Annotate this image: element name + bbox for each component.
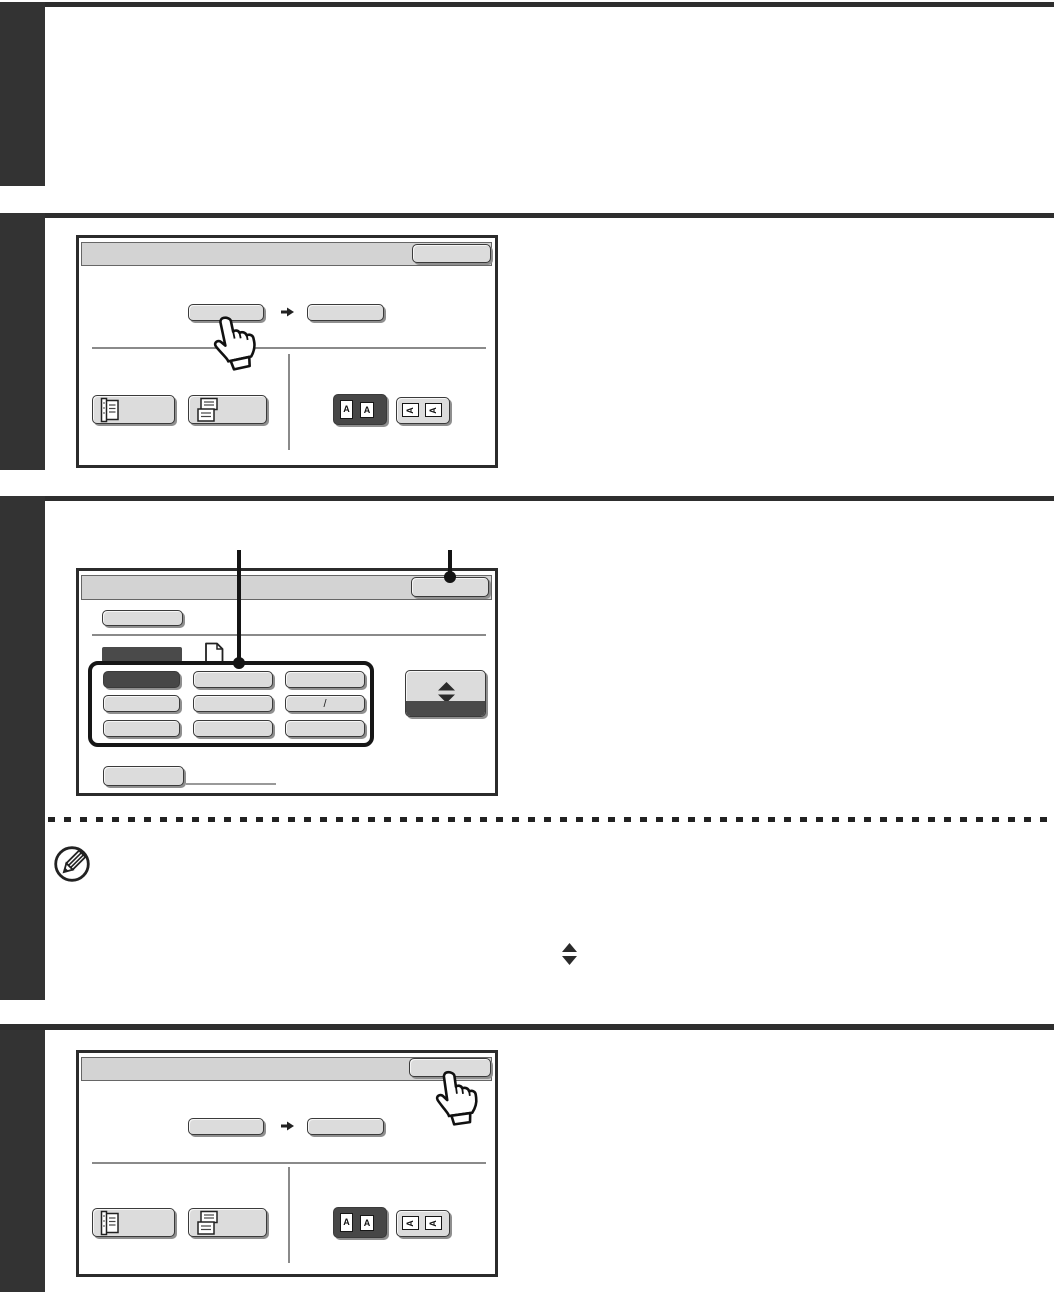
booklet-document-icon [99,1210,121,1236]
arrow-right-icon [281,1121,294,1131]
touch-screen-2: / [76,568,498,796]
booklet-document-icon [99,397,121,423]
screen1-ok-button[interactable] [412,244,491,263]
section-rule-4 [0,1024,1054,1030]
size-key-8[interactable] [193,720,273,737]
screen1-orientation-landscape-button[interactable]: A A [396,397,450,424]
screen3-horizontal-divider [92,1162,486,1164]
screen2-menu-button[interactable] [102,610,183,626]
stacked-pages-icon [195,397,219,423]
touch-screen-1: A A A A [76,235,498,468]
manual-page: A A A A [0,0,1054,1292]
screen3-booklet-icon-button[interactable] [92,1208,175,1237]
step-bar-2 [0,213,45,470]
section-rule-3 [0,496,1054,501]
size-key-4[interactable] [103,695,180,712]
landscape-page-icon: A [402,1216,419,1230]
pointing-hand-icon [425,1066,485,1131]
step-bar-3 [0,496,45,1000]
size-key-1[interactable] [103,671,180,688]
step-bar-1 [0,2,45,186]
callout-dot-size-keys [233,657,245,669]
screen1-horizontal-divider [92,347,486,349]
section-rule-2 [0,213,1054,218]
screen1-orientation-portrait-button[interactable]: A A [333,394,387,425]
landscape-page-icon: A [402,403,419,417]
size-key-2[interactable] [193,671,273,688]
screen2-selected-tab[interactable] [102,647,182,662]
size-key-7[interactable] [103,720,180,737]
screen1-booklet-icon-button[interactable] [92,395,175,424]
section-rule-1 [0,2,1054,7]
screen2-scroll-button[interactable] [405,670,486,717]
screen1-pages-icon-button[interactable] [188,395,267,424]
size-key-5[interactable] [193,695,273,712]
portrait-page-icon: A [340,1213,353,1232]
landscape-page-icon: A [425,403,442,417]
screen3-original-size-button[interactable] [188,1118,264,1135]
up-down-diamond-icon [562,943,577,965]
screen1-paper-size-button[interactable] [307,304,384,321]
screen2-horizontal-divider [92,634,486,636]
landscape-page-icon: A [425,1216,442,1230]
size-key-3[interactable] [285,671,365,688]
screen1-vertical-divider [288,354,290,450]
screen2-footer-button[interactable] [103,766,184,786]
screen3-paper-size-button[interactable] [307,1118,384,1135]
screen3-orientation-landscape-button[interactable]: A A [396,1210,450,1237]
portrait-page-icon: A [360,1215,374,1231]
screen3-vertical-divider [288,1167,290,1263]
callout-line-size-keys [237,550,241,662]
size-key-slash[interactable]: / [285,695,365,712]
screen3-pages-icon-button[interactable] [188,1208,267,1237]
portrait-page-icon: A [360,402,374,418]
value-underline [186,783,276,785]
pencil-circle-icon [53,845,91,883]
screen3-orientation-portrait-button[interactable]: A A [333,1207,387,1238]
arrow-right-icon [281,307,294,317]
stacked-pages-icon [195,1210,219,1236]
portrait-page-icon: A [340,400,353,419]
note-dashed-divider [48,817,1054,822]
step-bar-4 [0,1030,45,1292]
up-down-diamond-icon [438,682,455,703]
callout-dot-ok-button [444,571,456,583]
touch-screen-3: A A A A [76,1050,498,1277]
scroll-button-dark-band [406,701,485,716]
size-key-9[interactable] [285,720,365,737]
